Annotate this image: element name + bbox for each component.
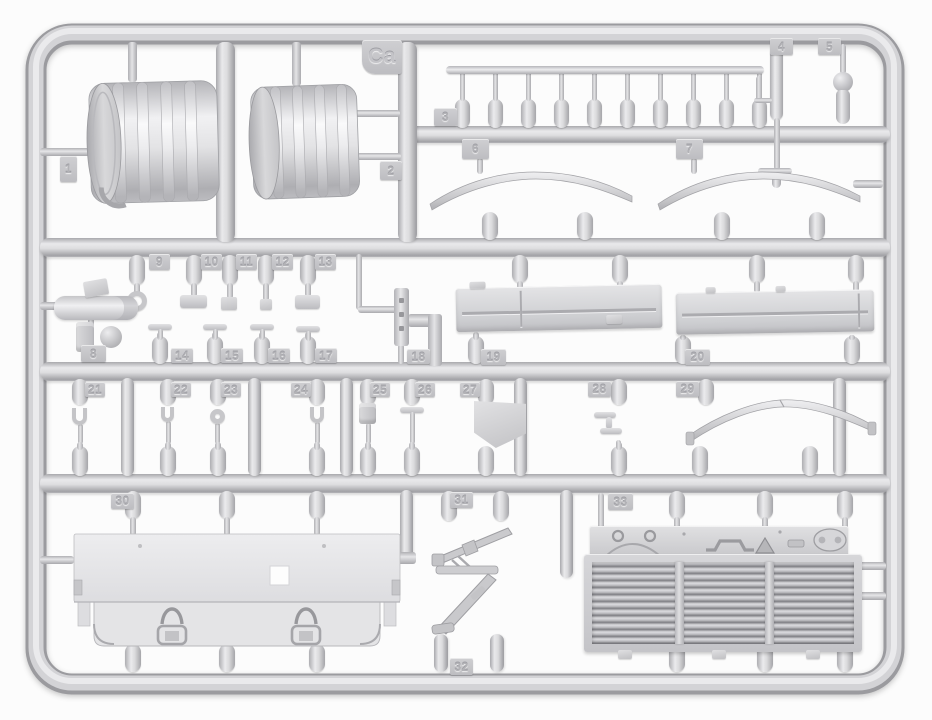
- part-tag-21: 21: [85, 382, 105, 397]
- sprue-photo: Ca12345678910111213141516171819202122232…: [0, 0, 932, 720]
- part-tag-18: 18: [407, 349, 430, 364]
- part-tag-Ca: Ca: [362, 40, 402, 74]
- part-tag-29: 29: [676, 381, 699, 397]
- part-tag-1: 1: [60, 156, 77, 182]
- part-tag-22: 22: [171, 382, 191, 397]
- part-tag-33: 33: [608, 493, 633, 510]
- part-tag-5: 5: [818, 38, 841, 55]
- part-tag-16: 16: [268, 348, 290, 363]
- part-tag-24: 24: [291, 382, 311, 397]
- part-tag-4: 4: [770, 38, 793, 55]
- tag-layer: Ca12345678910111213141516171819202122232…: [0, 0, 932, 720]
- part-tag-31: 31: [450, 492, 473, 508]
- part-tag-7: 7: [676, 139, 703, 159]
- part-tag-3: 3: [434, 108, 457, 126]
- part-tag-11: 11: [236, 254, 257, 270]
- part-tag-15: 15: [221, 348, 243, 363]
- part-tag-10: 10: [201, 254, 222, 270]
- part-tag-25: 25: [370, 382, 390, 397]
- part-tag-26: 26: [415, 382, 435, 397]
- part-tag-9: 9: [149, 254, 170, 270]
- part-tag-27: 27: [460, 382, 480, 397]
- part-tag-32: 32: [450, 658, 473, 675]
- part-tag-17: 17: [315, 348, 337, 363]
- part-tag-14: 14: [171, 348, 193, 363]
- part-tag-20: 20: [685, 349, 710, 365]
- part-tag-12: 12: [272, 254, 293, 270]
- part-tag-30: 30: [111, 493, 134, 509]
- part-tag-8: 8: [81, 345, 106, 362]
- part-tag-6: 6: [462, 139, 489, 159]
- part-tag-23: 23: [221, 382, 241, 397]
- part-tag-28: 28: [588, 381, 611, 397]
- part-tag-19: 19: [481, 349, 506, 365]
- part-tag-13: 13: [315, 254, 336, 270]
- part-tag-2: 2: [380, 161, 402, 180]
